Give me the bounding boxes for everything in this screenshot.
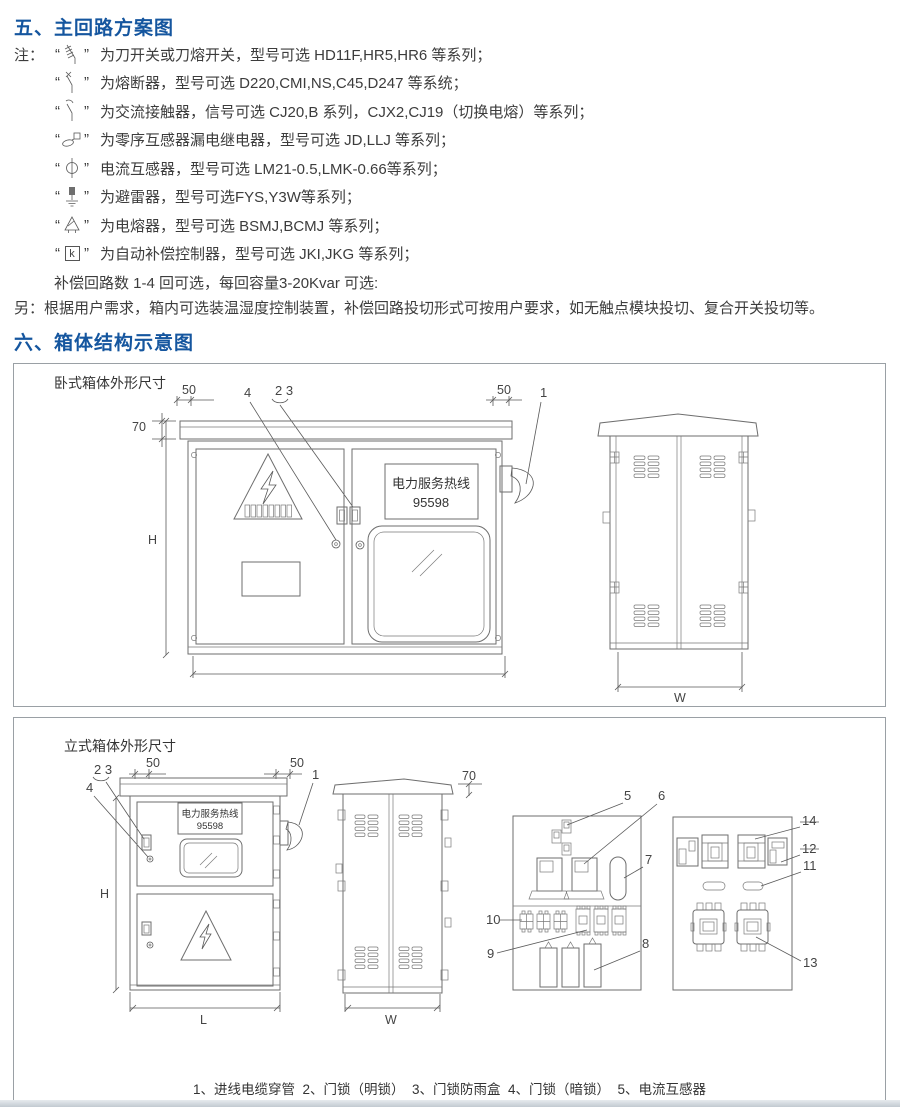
callout-9: 9 xyxy=(487,946,494,961)
hotline-text: 电力服务热线 xyxy=(181,808,239,820)
section5-notes: 注： “ ” 为刀开关或刀熔开关，型号可选 HD11F,HR5,HR6 等系列；… xyxy=(14,40,884,297)
h-window xyxy=(368,526,490,642)
note-line: “ ” 为避雷器，型号可选FYS,Y3W等系列； xyxy=(14,183,884,212)
parts-legend: 1、进线电缆穿管 2、门锁（明锁） 3、门锁防雨盒 4、门锁（暗锁） 5、电流互… xyxy=(14,1030,885,1107)
section5-heading: 五、主回路方案图 xyxy=(14,13,174,40)
fuse-icon xyxy=(61,71,83,95)
callout-4: 4 xyxy=(244,385,251,400)
note-text: 为刀开关或刀熔开关，型号可选 HD11F,HR5,HR6 等系列； xyxy=(100,44,491,65)
slot-left xyxy=(703,882,725,890)
note-text: 电流互感器，型号可选 LM21-0.5,LMK-0.66等系列； xyxy=(100,158,447,179)
knife-switch-icon xyxy=(61,42,83,66)
quote-open: “ xyxy=(54,217,61,234)
note-text: 为避雷器，型号可选FYS,Y3W等系列； xyxy=(100,186,361,207)
capacitor-icon xyxy=(61,213,83,237)
arrester-icon xyxy=(61,185,83,209)
callout-1: 1 xyxy=(312,767,319,782)
dim-L: L xyxy=(200,1013,207,1027)
note-line: “ ” 为零序互感器漏电继电器，型号可选 JD,LLJ 等系列； xyxy=(14,126,884,155)
vertical-cabinet-panel: 立式箱体外形尺寸 2 3 4 50 50 1 xyxy=(13,717,886,1103)
internal-layout-1 xyxy=(513,816,641,990)
capacitors xyxy=(540,938,601,987)
note-line: “ ” 为熔断器，型号可选 D220,CMI,NS,C45,D247 等系统； xyxy=(14,69,884,98)
note-text: 为零序互感器漏电继电器，型号可选 JD,LLJ 等系列； xyxy=(100,129,455,150)
callout-2-3: 2 3 xyxy=(94,762,112,777)
quote-close: ” xyxy=(83,131,90,148)
note-text: 为自动补偿控制器，型号可选 JKI,JKG 等系列； xyxy=(100,243,418,264)
controller-k-icon: k xyxy=(61,242,83,266)
note-line: “ ” 为交流接触器，信号可选 CJ20,B 系列，CJX2,CJ19（切换电熔… xyxy=(14,97,884,126)
hotline-text: 电力服务热线 xyxy=(392,476,470,491)
callout-14: 14 xyxy=(802,813,816,828)
note-line: “ k ” 为自动补偿控制器，型号可选 JKI,JKG 等系列； xyxy=(14,240,884,269)
note-prefix: 注： xyxy=(14,44,54,65)
dim-W: W xyxy=(674,691,686,705)
quote-open: “ xyxy=(54,103,61,120)
ac-contactor-icon xyxy=(61,99,83,123)
dim-50-right: 50 xyxy=(290,756,304,770)
quote-close: ” xyxy=(83,188,90,205)
callout-11: 11 xyxy=(803,858,817,873)
quote-open: “ xyxy=(54,245,61,262)
current-transformer-icon xyxy=(61,156,83,180)
hotline-number: 95598 xyxy=(413,495,449,510)
quote-open: “ xyxy=(54,160,61,177)
page-bottom-strip xyxy=(0,1100,900,1107)
mini-breakers xyxy=(520,911,567,932)
v-side-vents xyxy=(355,815,422,969)
note-line: “ ” 电流互感器，型号可选 LM21-0.5,LMK-0.66等系列； xyxy=(14,154,884,183)
extra-note: 另：根据用户需求，箱内可选装温湿度控制装置，补偿回路投切形式可按用户要求，如无触… xyxy=(14,297,894,318)
quote-close: ” xyxy=(83,245,90,262)
h-warning-triangle xyxy=(234,454,302,519)
note-text: 为熔断器，型号可选 D220,CMI,NS,C45,D247 等系统； xyxy=(100,72,468,93)
callout-6: 6 xyxy=(658,788,665,803)
dim-W: W xyxy=(385,1013,397,1027)
outgoing-contactors xyxy=(691,903,770,951)
dim-H: H xyxy=(148,533,157,547)
legend-line-1: 1、进线电缆穿管 2、门锁（明锁） 3、门锁防雨盒 4、门锁（暗锁） 5、电流互… xyxy=(14,1078,885,1102)
h-side-view xyxy=(598,414,758,692)
callout-7: 7 xyxy=(645,852,652,867)
quote-close: ” xyxy=(83,217,90,234)
horizontal-cabinet-drawing: 卧式箱体外形尺寸 50 4 2 3 70 H xyxy=(14,364,885,706)
meter-boxes xyxy=(529,858,604,899)
h-front-body xyxy=(188,441,502,654)
quote-close: ” xyxy=(83,46,90,63)
dim-70: 70 xyxy=(132,420,146,434)
callout-1: 1 xyxy=(540,385,547,400)
h-side-vents xyxy=(634,456,725,627)
v-front-view: 电力服务热线 95598 xyxy=(120,778,302,990)
callout-10: 10 xyxy=(486,912,500,927)
horizontal-cabinet-panel: 卧式箱体外形尺寸 50 4 2 3 70 H xyxy=(13,363,886,707)
quote-close: ” xyxy=(83,74,90,91)
quote-close: ” xyxy=(83,160,90,177)
dim-50-right: 50 xyxy=(497,383,511,397)
outgoing-breakers xyxy=(702,835,765,868)
catalog-page: 五、主回路方案图 注： “ ” 为刀开关或刀熔开关，型号可选 HD11F,HR5… xyxy=(0,0,900,1107)
note-line: “ ” 为电熔器，型号可选 BSMJ,BCMJ 等系列； xyxy=(14,211,884,240)
quote-close: ” xyxy=(83,103,90,120)
callout-13: 13 xyxy=(803,955,817,970)
dim-50-left: 50 xyxy=(146,756,160,770)
note-tail: 补偿回路数 1-4 回可选，每回容量3-20Kvar 可选: xyxy=(54,268,884,297)
callout-12: 12 xyxy=(802,841,816,856)
hotline-number: 95598 xyxy=(197,821,223,832)
quote-open: “ xyxy=(54,131,61,148)
callout-8: 8 xyxy=(642,936,649,951)
v-side-view xyxy=(333,779,453,993)
h-front-roof xyxy=(180,421,512,439)
quote-open: “ xyxy=(54,74,61,91)
h-hotline-sign: 电力服务热线 95598 xyxy=(385,464,478,519)
note-text: 为电熔器，型号可选 BSMJ,BCMJ 等系列； xyxy=(100,215,388,236)
note-text: 为交流接触器，信号可选 CJ20,B 系列，CJX2,CJ19（切换电熔）等系列… xyxy=(100,101,593,122)
dim-H: H xyxy=(100,887,109,901)
callout-2-3: 2 3 xyxy=(275,383,293,398)
section6-heading: 六、箱体结构示意图 xyxy=(14,328,194,355)
h-door-locks xyxy=(332,507,364,549)
h-nameplate xyxy=(242,562,300,596)
horizontal-caption: 卧式箱体外形尺寸 xyxy=(54,375,166,391)
vertical-caption: 立式箱体外形尺寸 xyxy=(64,738,176,754)
dim-50-left: 50 xyxy=(182,383,196,397)
zero-sequence-relay-icon xyxy=(61,128,83,152)
dim-70: 70 xyxy=(462,769,476,783)
callout-4: 4 xyxy=(86,780,93,795)
note-line: 注： “ ” 为刀开关或刀熔开关，型号可选 HD11F,HR5,HR6 等系列； xyxy=(14,40,884,69)
junction-box xyxy=(610,857,626,900)
callout-5: 5 xyxy=(624,788,631,803)
slot-right xyxy=(743,882,763,890)
quote-open: “ xyxy=(54,46,61,63)
internal-layout-2 xyxy=(673,817,792,990)
quote-open: “ xyxy=(54,188,61,205)
controller-k-label: k xyxy=(65,246,80,261)
